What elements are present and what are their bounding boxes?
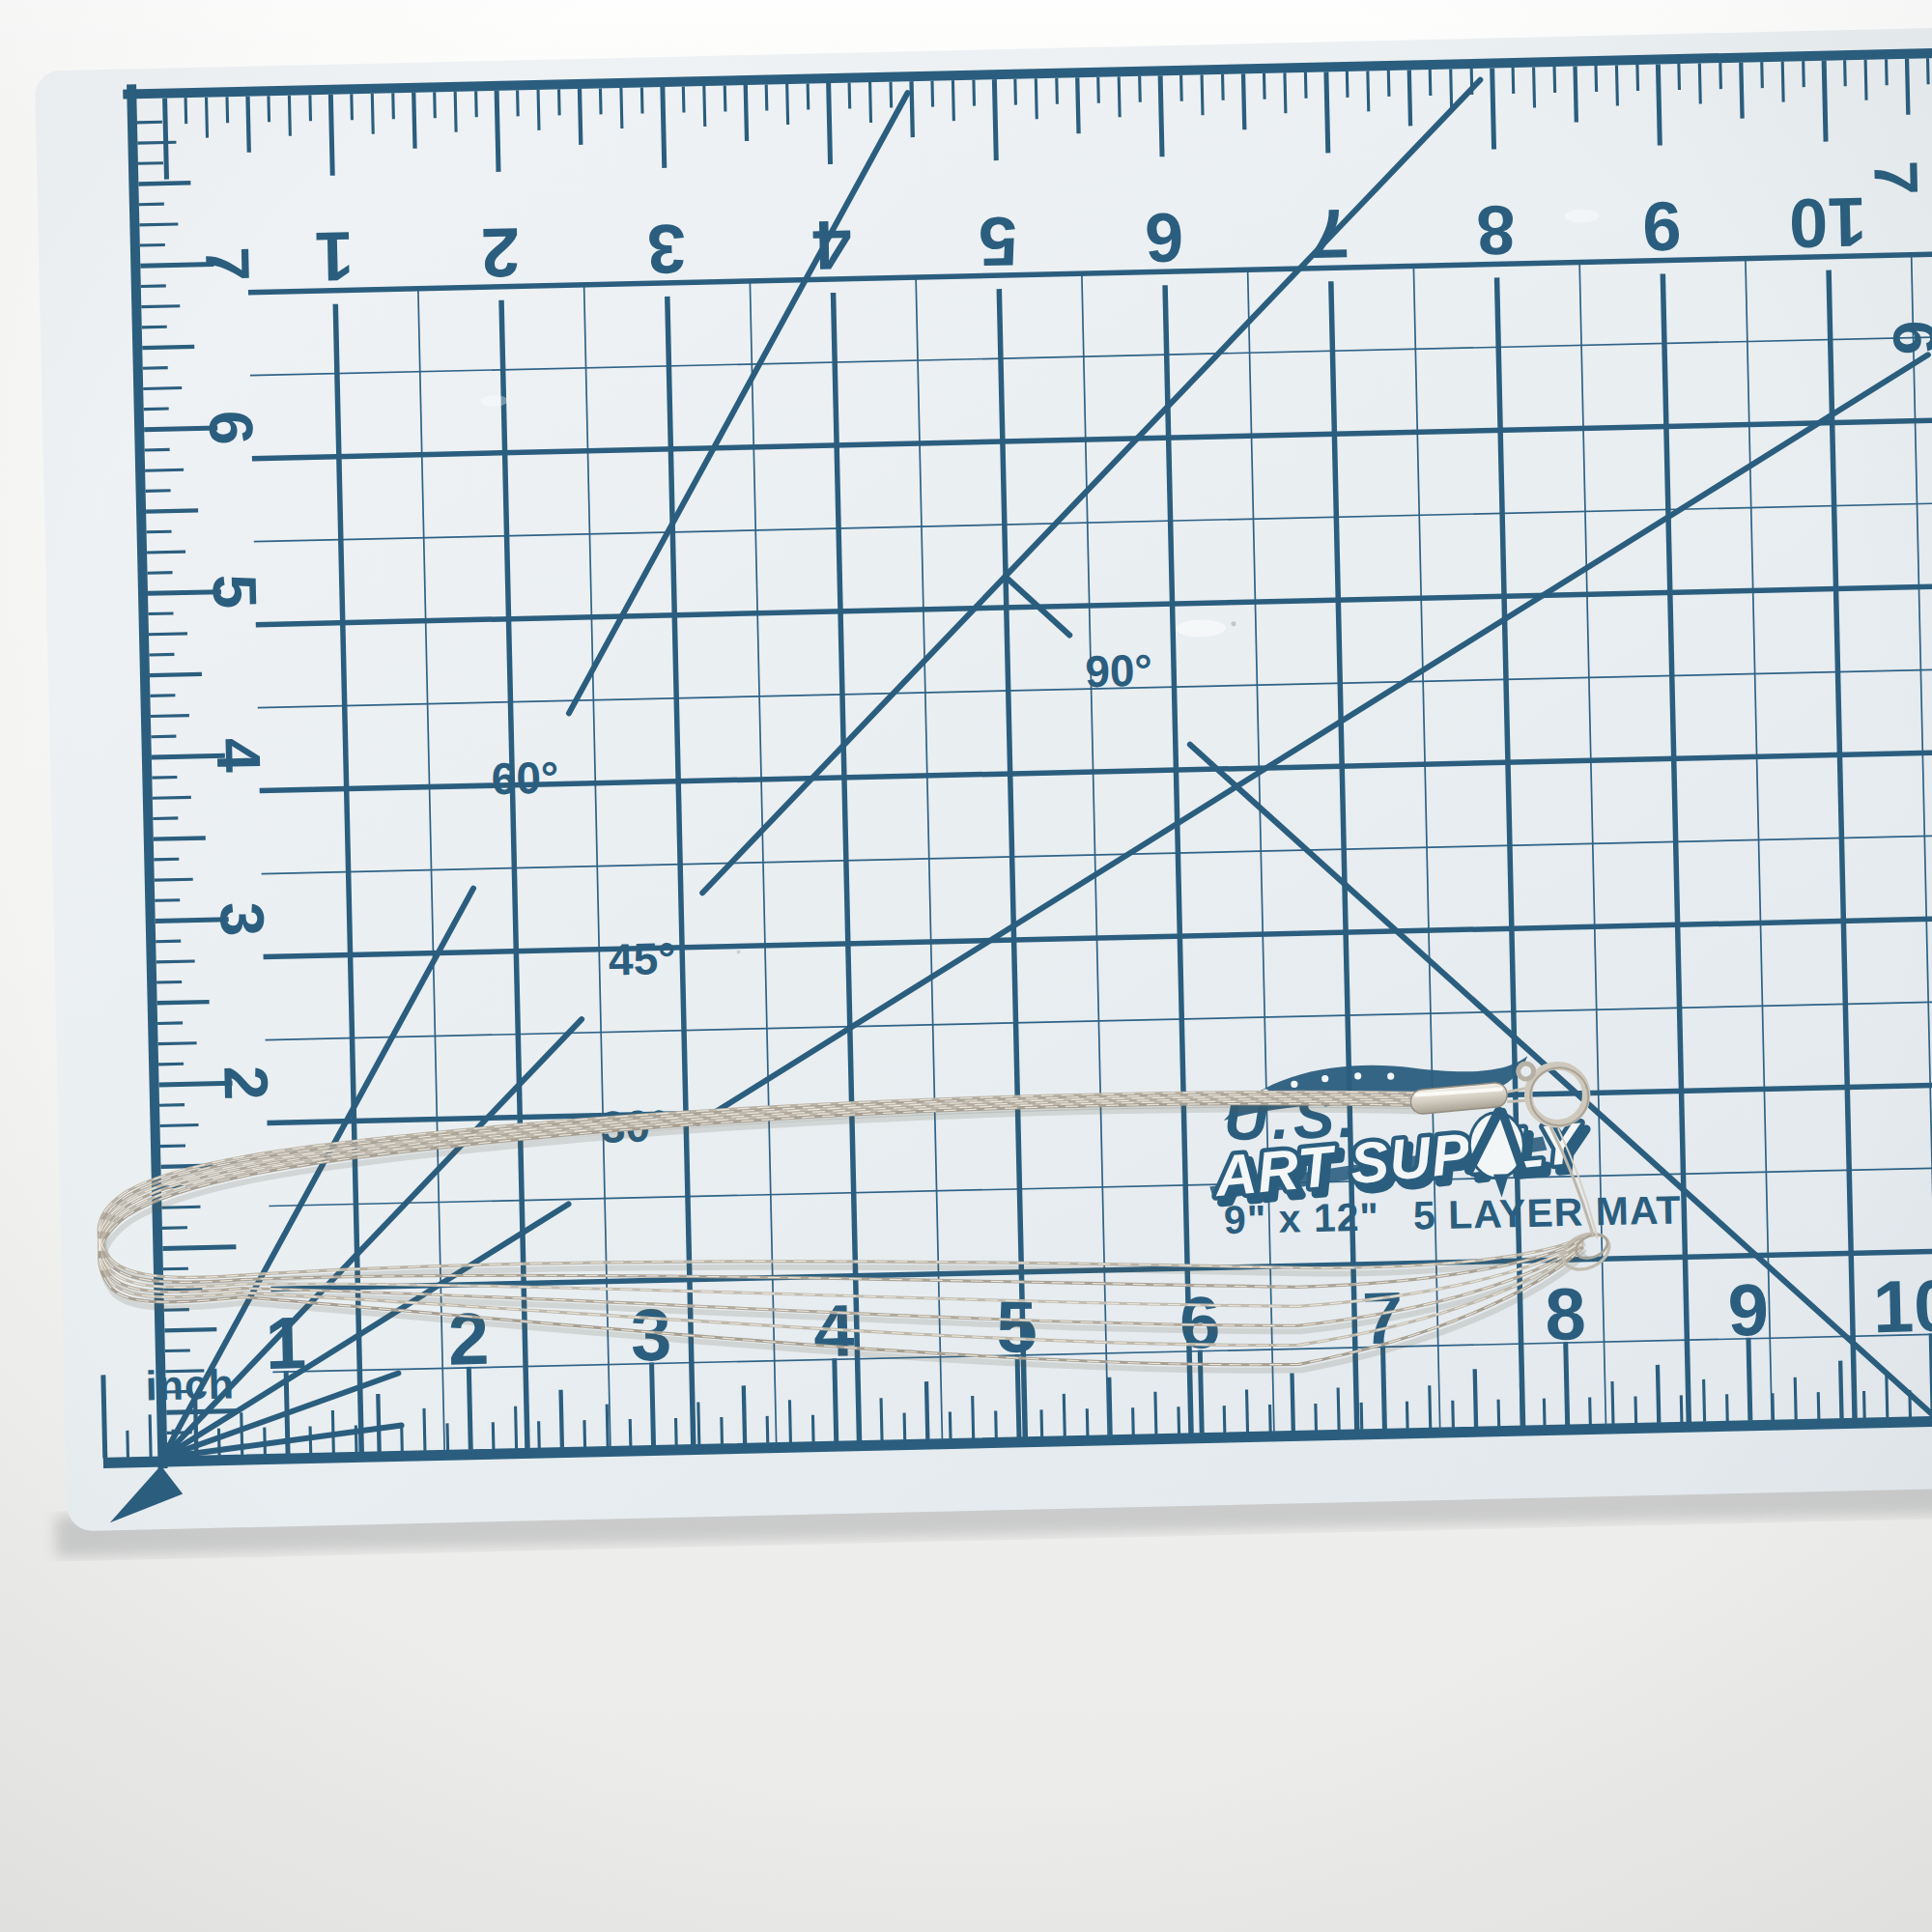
photo-vignette: [0, 0, 1932, 1932]
photo-cutting-mat-with-necklace: 123456789101234567891076543276 60° 45° 9…: [0, 0, 1932, 1932]
